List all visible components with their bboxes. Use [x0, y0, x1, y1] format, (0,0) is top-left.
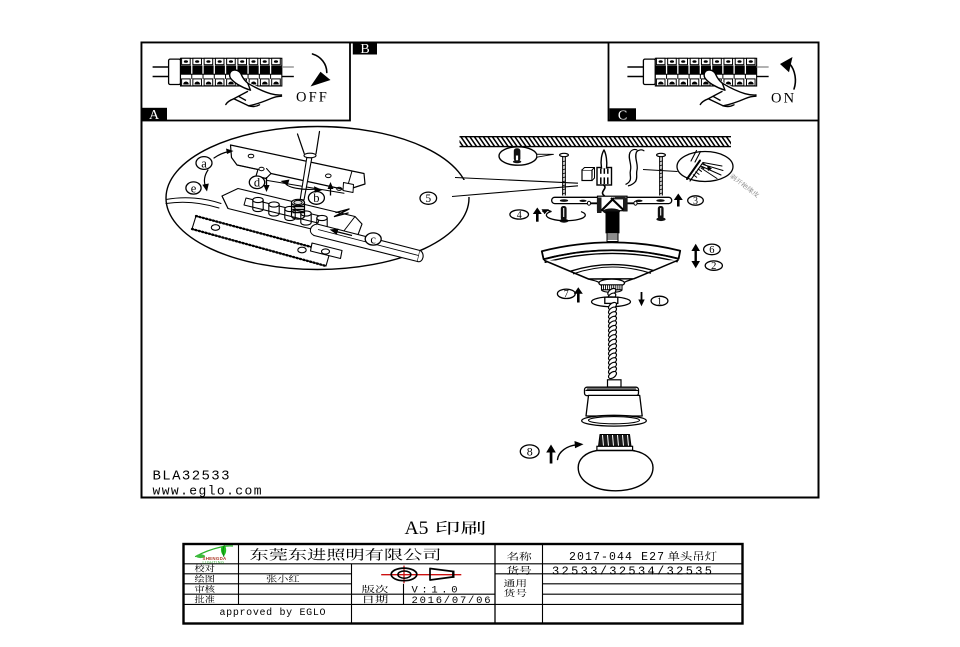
- svg-text:b: b: [313, 191, 319, 205]
- svg-text:32533/32534/32535: 32533/32534/32535: [552, 564, 712, 578]
- svg-text:www.eglo.com: www.eglo.com: [153, 484, 262, 499]
- svg-text:1: 1: [657, 296, 662, 307]
- svg-text:5: 5: [425, 193, 431, 205]
- svg-text:LIGHTING: LIGHTING: [203, 561, 225, 565]
- svg-text:c: c: [370, 232, 376, 246]
- svg-text:approved by EGLO: approved by EGLO: [220, 607, 326, 619]
- svg-text:OFF: OFF: [296, 90, 329, 106]
- svg-text:C: C: [618, 109, 627, 124]
- svg-text:e: e: [191, 181, 197, 195]
- svg-text:A5: A5: [405, 519, 429, 539]
- svg-text:BLA32533: BLA32533: [153, 468, 230, 484]
- svg-text:d: d: [254, 176, 261, 190]
- svg-text:3: 3: [693, 196, 698, 207]
- svg-text:2: 2: [711, 261, 716, 272]
- svg-text:A: A: [149, 108, 160, 123]
- svg-text:4: 4: [517, 210, 522, 221]
- svg-text:B: B: [360, 42, 369, 57]
- svg-text:2016/07/06: 2016/07/06: [412, 595, 491, 607]
- svg-text:6: 6: [709, 245, 714, 256]
- svg-text:7: 7: [564, 289, 569, 300]
- svg-text:a: a: [201, 156, 207, 170]
- svg-text:8: 8: [527, 445, 533, 459]
- svg-text:2017-044 E27: 2017-044 E27: [569, 551, 664, 564]
- svg-text:ON: ON: [771, 91, 796, 107]
